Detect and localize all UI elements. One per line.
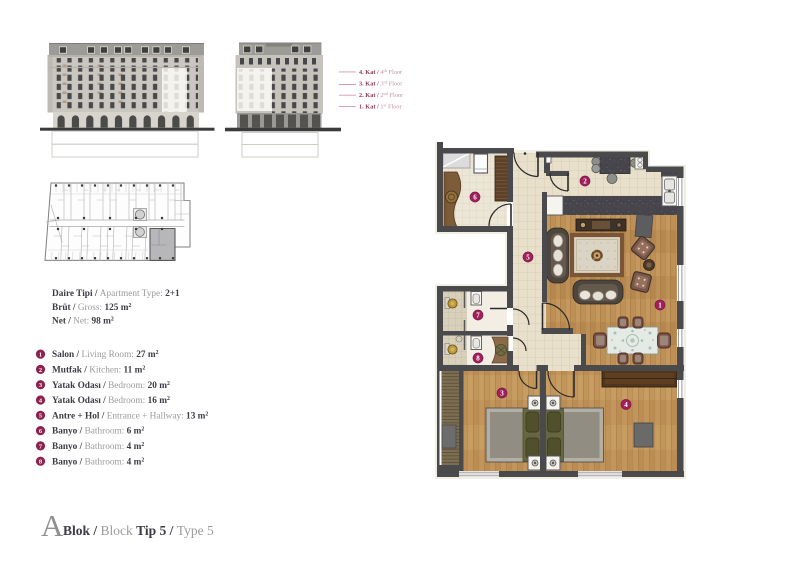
svg-text:2: 2	[39, 367, 42, 374]
svg-text:Yatak Odası / Bedroom: 20 m2: Yatak Odası / Bedroom: 20 m2	[52, 381, 170, 391]
svg-text:Blok / Block Tip 5 / Type 5: Blok / Block Tip 5 / Type 5	[63, 523, 214, 538]
svg-text:Brüt / Gross: 125 m2: Brüt / Gross: 125 m2	[52, 303, 131, 313]
svg-text:1: 1	[658, 301, 662, 309]
svg-text:1. Kat / 1st Floor: 1. Kat / 1st Floor	[359, 103, 403, 111]
svg-text:6: 6	[473, 193, 477, 201]
svg-text:Banyo / Bathroom: 6 m2: Banyo / Bathroom: 6 m2	[52, 427, 144, 437]
svg-text:3: 3	[500, 389, 504, 397]
svg-text:8: 8	[39, 459, 42, 466]
svg-text:3: 3	[39, 382, 42, 389]
svg-text:Antre + Hol / Entrance + Hallw: Antre + Hol / Entrance + Hallway: 13 m2	[52, 411, 208, 421]
svg-text:1: 1	[39, 352, 42, 359]
svg-text:Banyo / Bathroom: 4 m2: Banyo / Bathroom: 4 m2	[52, 457, 144, 467]
svg-text:3. Kat / 3rd Floor: 3. Kat / 3rd Floor	[359, 80, 403, 88]
svg-text:8: 8	[476, 354, 480, 362]
svg-text:Mutfak / Kitchen: 11 m2: Mutfak / Kitchen: 11 m2	[52, 366, 145, 376]
svg-text:4. Kat / 4th Floor: 4. Kat / 4th Floor	[359, 68, 403, 76]
svg-text:Banyo / Bathroom: 4 m2: Banyo / Bathroom: 4 m2	[52, 442, 144, 452]
svg-text:A: A	[41, 508, 64, 543]
svg-text:2. Kat / 2nd Floor: 2. Kat / 2nd Floor	[359, 91, 404, 99]
svg-text:7: 7	[476, 311, 480, 319]
svg-text:2: 2	[583, 177, 587, 185]
svg-text:Net / Net: 98 m2: Net / Net: 98 m2	[52, 317, 114, 327]
svg-text:5: 5	[526, 253, 530, 261]
svg-text:Daire Tipi / Apartment Type: 2: Daire Tipi / Apartment Type: 2+1	[52, 289, 180, 299]
svg-text:5: 5	[39, 413, 42, 420]
svg-text:Yatak Odası / Bedroom: 16 m2: Yatak Odası / Bedroom: 16 m2	[52, 396, 170, 406]
svg-text:4: 4	[624, 401, 628, 409]
svg-text:Salon / Living Room: 27 m2: Salon / Living Room: 27 m2	[52, 350, 159, 360]
